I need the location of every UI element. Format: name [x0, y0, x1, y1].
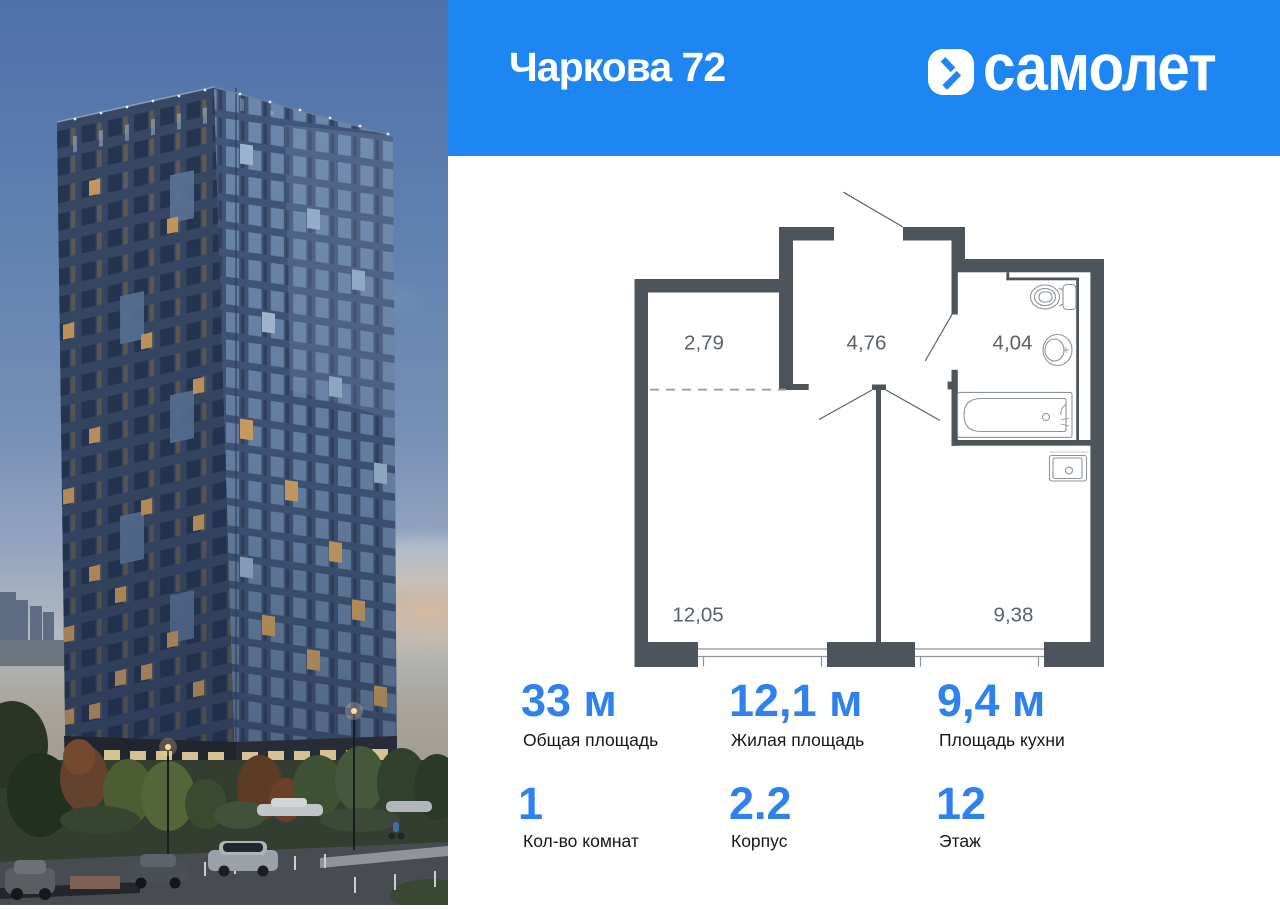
svg-text:4,04: 4,04: [993, 332, 1033, 355]
svg-text:2,79: 2,79: [684, 332, 724, 355]
svg-text:9,38: 9,38: [994, 604, 1034, 627]
svg-text:12,05: 12,05: [672, 604, 723, 627]
svg-text:4,76: 4,76: [847, 332, 887, 355]
